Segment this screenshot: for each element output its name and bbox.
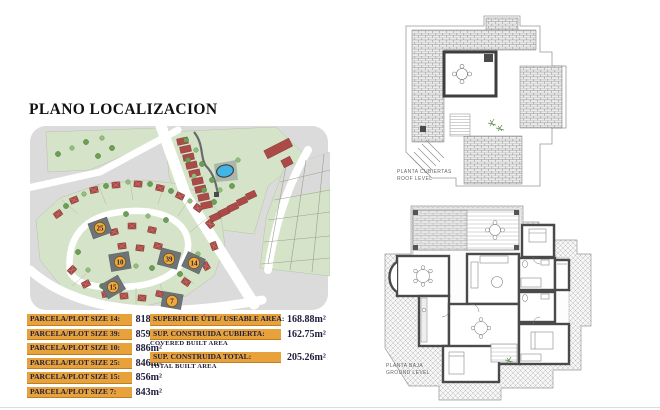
- plot-label: PARCELA/PLOT SIZE 15:: [27, 372, 132, 384]
- stairs: [450, 114, 470, 136]
- chimney: [420, 126, 426, 132]
- stairs: [491, 344, 517, 362]
- plot-label: PARCELA/PLOT SIZE 10:: [27, 343, 132, 355]
- area-sublabel: TOTAL BUILT AREA: [150, 363, 283, 372]
- table-row: SUP. CONSTRUIDA TOTAL: TOTAL BUILT AREA …: [150, 352, 328, 372]
- built-area-table: SUPERFICIE ÚTIL/ USEABLE AREA: 168.88m² …: [150, 314, 328, 375]
- area-value: 162.75m²: [287, 329, 326, 340]
- table-row: PARCELA/PLOT SIZE 15: 856m²: [27, 372, 162, 384]
- ground-plan-label: PLANTA BAJA GROUND LEVEL: [386, 363, 430, 377]
- svg-text:15: 15: [110, 283, 118, 291]
- roof-plan-label: PLANTA CUBIERTAS ROOF LEVEL: [397, 169, 452, 183]
- svg-text:10: 10: [117, 258, 125, 266]
- pergola-terrace: [413, 210, 519, 250]
- plot-marker-7: 7: [166, 295, 177, 306]
- table-row: SUPERFICIE ÚTIL/ USEABLE AREA: 168.88m²: [150, 314, 328, 326]
- plot-label: PARCELA/PLOT SIZE 25:: [27, 358, 132, 370]
- area-value: 205.26m²: [287, 352, 326, 363]
- site-map-drawing: 25 10 39 14 15 7: [28, 124, 330, 312]
- plot-size-table: PARCELA/PLOT SIZE 14: 818m² PARCELA/PLOT…: [27, 314, 162, 402]
- roof-plan-drawing: [392, 10, 578, 194]
- plot-marker-25: 25: [94, 222, 105, 233]
- area-label: SUP. CONSTRUIDA CUBIERTA:: [150, 329, 281, 341]
- area-value: 168.88m²: [287, 314, 326, 325]
- area-label: SUP. CONSTRUIDA TOTAL:: [150, 352, 281, 364]
- plot-marker-39: 39: [163, 253, 174, 264]
- area-sublabel: COVERED BUILT AREA: [150, 340, 283, 349]
- table-row: PARCELA/PLOT SIZE 14: 818m²: [27, 314, 162, 326]
- location-map: 25 10 39 14 15 7: [28, 124, 330, 312]
- plot-label: PARCELA/PLOT SIZE 14:: [27, 314, 132, 326]
- plot-marker-15: 15: [107, 281, 118, 292]
- table-row: PARCELA/PLOT SIZE 25: 846m²: [27, 358, 162, 370]
- roof-plan: [392, 10, 578, 194]
- area-label: SUPERFICIE ÚTIL/ USEABLE AREA:: [150, 314, 281, 326]
- page-bottom-rule: [0, 407, 660, 408]
- svg-text:14: 14: [191, 259, 199, 267]
- plot-label: PARCELA/PLOT SIZE 39:: [27, 329, 132, 341]
- table-row: SUP. CONSTRUIDA CUBIERTA: COVERED BUILT …: [150, 329, 328, 349]
- plot-marker-14: 14: [188, 257, 199, 268]
- plot-label: PARCELA/PLOT SIZE 7:: [27, 387, 132, 399]
- svg-text:25: 25: [97, 224, 105, 232]
- table-row: PARCELA/PLOT SIZE 7: 843m²: [27, 387, 162, 399]
- svg-text:7: 7: [170, 297, 174, 305]
- plot-marker-10: 10: [114, 256, 125, 267]
- table-row: PARCELA/PLOT SIZE 10: 886m²: [27, 343, 162, 355]
- page-title: PLANO LOCALIZACION: [29, 101, 218, 119]
- document-page: PLANO LOCALIZACION: [0, 0, 660, 410]
- svg-text:39: 39: [166, 255, 174, 263]
- plot-value: 843m²: [136, 387, 162, 398]
- table-row: PARCELA/PLOT SIZE 39: 859m²: [27, 329, 162, 341]
